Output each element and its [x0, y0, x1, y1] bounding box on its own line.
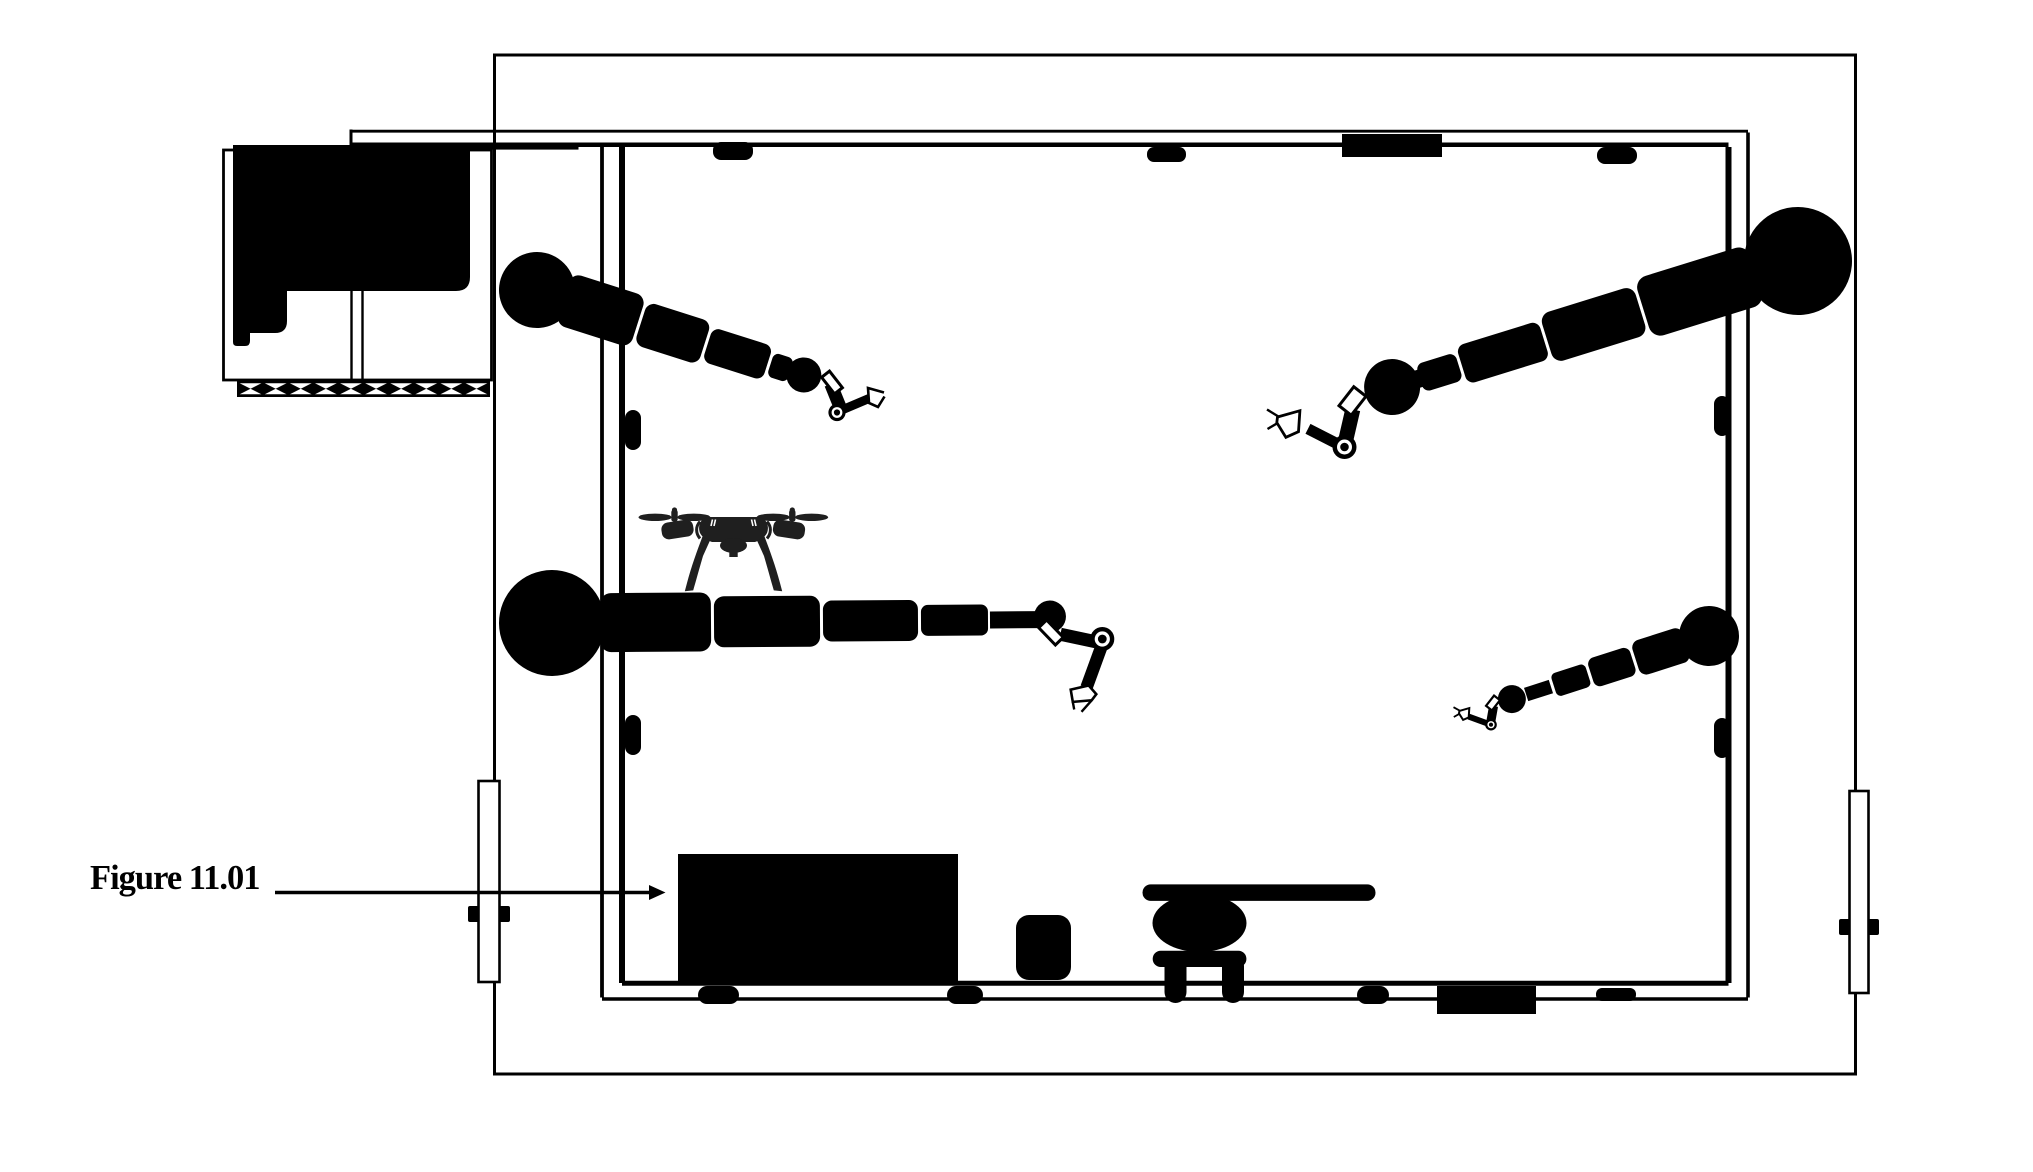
- svg-text:Figure 11.01: Figure 11.01: [90, 859, 261, 897]
